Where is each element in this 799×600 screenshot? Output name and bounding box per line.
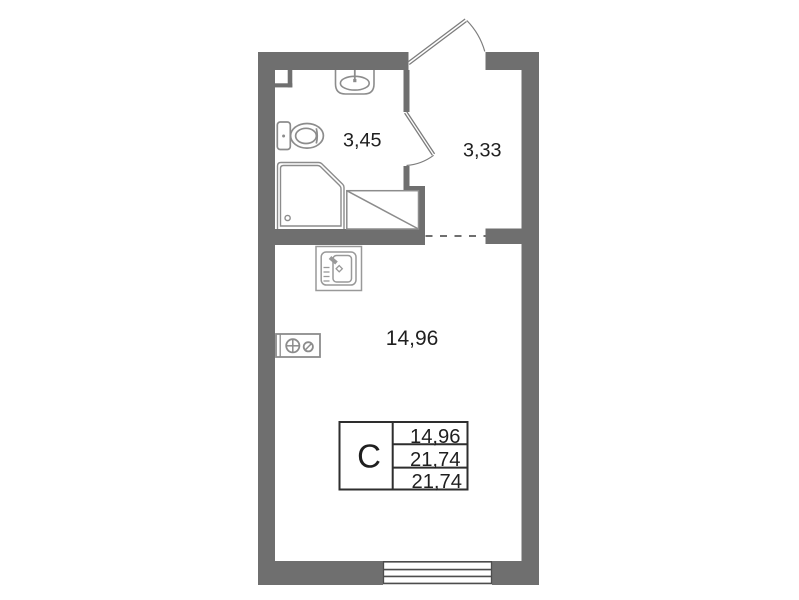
svg-text:3,33: 3,33 [463,140,502,162]
svg-text:21,74: 21,74 [411,471,462,493]
svg-text:С: С [357,438,381,475]
svg-text:3,45: 3,45 [343,129,382,151]
svg-text:14,96: 14,96 [410,426,461,448]
svg-text:14,96: 14,96 [386,327,439,350]
svg-text:21,74: 21,74 [410,449,461,471]
